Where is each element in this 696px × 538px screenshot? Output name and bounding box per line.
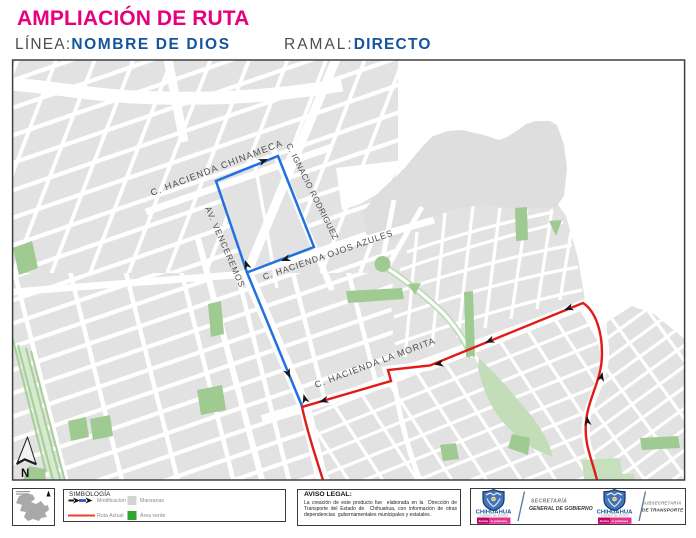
svg-text:GENERAL DE GOBIERNO: GENERAL DE GOBIERNO	[529, 506, 593, 512]
svg-text:SECRETARÍA: SECRETARÍA	[531, 498, 567, 505]
svg-text:Juntos: Juntos	[479, 519, 489, 523]
svg-text:SUBSECRETARÍA: SUBSECRETARÍA	[642, 501, 681, 506]
svg-text:DE TRANSPORTE: DE TRANSPORTE	[642, 508, 684, 513]
svg-text:sí podemos: sí podemos	[491, 519, 508, 523]
svg-text:GOBIERNO DEL ESTADO: GOBIERNO DEL ESTADO	[479, 514, 508, 517]
svg-text:N: N	[21, 468, 29, 480]
svg-text:GOBIERNO DEL ESTADO: GOBIERNO DEL ESTADO	[600, 514, 629, 517]
svg-text:sí podemos: sí podemos	[612, 519, 629, 523]
svg-text:Juntos: Juntos	[600, 519, 610, 523]
